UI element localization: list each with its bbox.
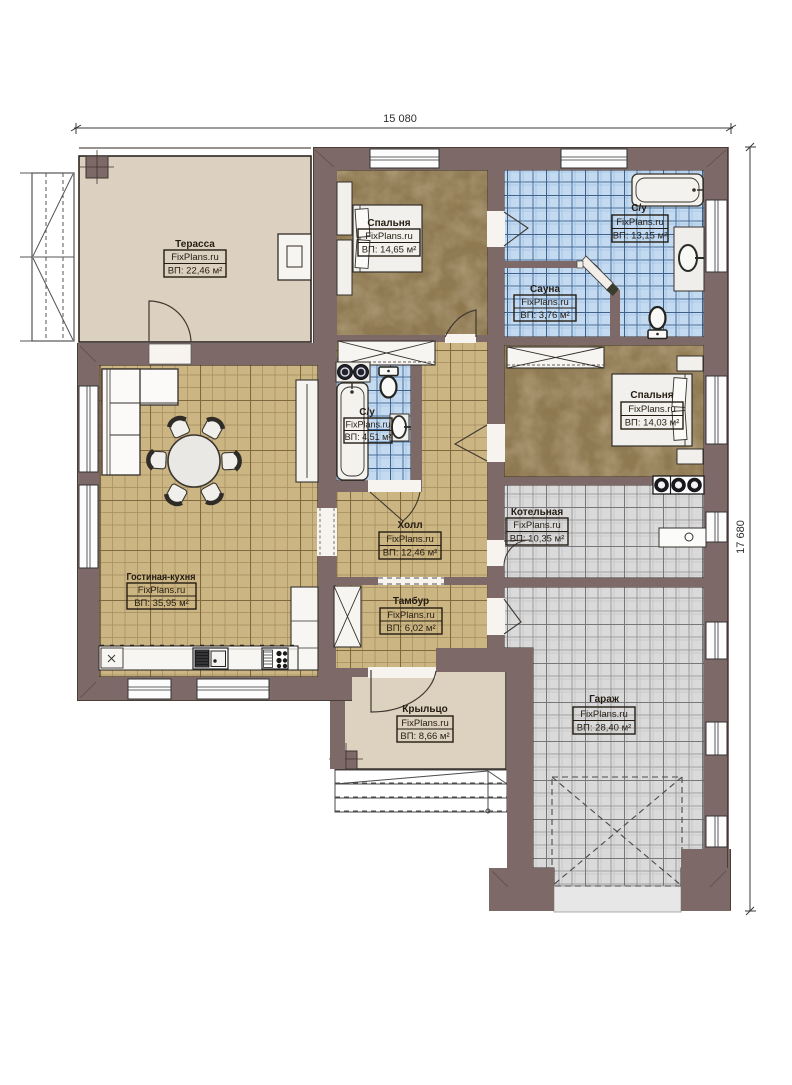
svg-text:FixPlans.ru: FixPlans.ru xyxy=(365,231,413,242)
svg-text:Гараж: Гараж xyxy=(589,694,620,705)
svg-text:FixPlans.ru: FixPlans.ru xyxy=(513,520,561,531)
svg-text:FixPlans.ru: FixPlans.ru xyxy=(616,217,664,228)
svg-text:FixPlans.ru: FixPlans.ru xyxy=(345,420,390,430)
svg-text:Сауна: Сауна xyxy=(530,284,561,295)
svg-text:FixPlans.ru: FixPlans.ru xyxy=(171,252,219,263)
svg-text:Спальня: Спальня xyxy=(630,390,673,401)
svg-text:17 680: 17 680 xyxy=(735,520,747,554)
svg-text:FixPlans.ru: FixPlans.ru xyxy=(628,404,676,415)
svg-text:ВП: 3,76 м²: ВП: 3,76 м² xyxy=(520,310,569,321)
svg-text:15 080: 15 080 xyxy=(383,113,417,125)
svg-text:Крыльцо: Крыльцо xyxy=(402,704,448,715)
svg-text:С/у: С/у xyxy=(631,203,647,214)
svg-text:FixPlans.ru: FixPlans.ru xyxy=(401,718,449,729)
svg-text:ВП: 14,65 м²: ВП: 14,65 м² xyxy=(362,245,417,256)
svg-text:ВП: 12,46 м²: ВП: 12,46 м² xyxy=(383,548,438,559)
svg-text:ВП: 4,51 м²: ВП: 4,51 м² xyxy=(345,432,392,442)
svg-text:Терасса: Терасса xyxy=(175,239,215,250)
svg-text:ВП: 28,40 м²: ВП: 28,40 м² xyxy=(577,723,632,734)
svg-text:ВП: 8,66 м²: ВП: 8,66 м² xyxy=(400,731,449,742)
svg-text:ВП: 14,03 м²: ВП: 14,03 м² xyxy=(625,418,680,429)
svg-text:FixPlans.ru: FixPlans.ru xyxy=(386,534,434,545)
svg-text:Котельная: Котельная xyxy=(511,507,564,518)
svg-text:ВП: 35,95 м²: ВП: 35,95 м² xyxy=(134,598,189,609)
svg-text:FixPlans.ru: FixPlans.ru xyxy=(521,297,569,308)
svg-text:Холл: Холл xyxy=(397,520,422,531)
svg-text:С/у: С/у xyxy=(359,407,375,418)
svg-text:FixPlans.ru: FixPlans.ru xyxy=(138,585,186,596)
svg-text:ВП: 6,02 м²: ВП: 6,02 м² xyxy=(386,623,435,634)
svg-text:ВП: 10,35 м²: ВП: 10,35 м² xyxy=(510,534,565,545)
svg-text:ВП: 22,46 м²: ВП: 22,46 м² xyxy=(168,266,223,277)
svg-text:FixPlans.ru: FixPlans.ru xyxy=(580,709,628,720)
svg-text:Тамбур: Тамбур xyxy=(393,595,429,607)
svg-text:Гостиная-кухня: Гостиная-кухня xyxy=(127,572,196,583)
svg-text:ВП: 13,15 м²: ВП: 13,15 м² xyxy=(613,231,668,242)
svg-text:Спальня: Спальня xyxy=(367,218,410,229)
svg-text:FixPlans.ru: FixPlans.ru xyxy=(387,610,435,621)
